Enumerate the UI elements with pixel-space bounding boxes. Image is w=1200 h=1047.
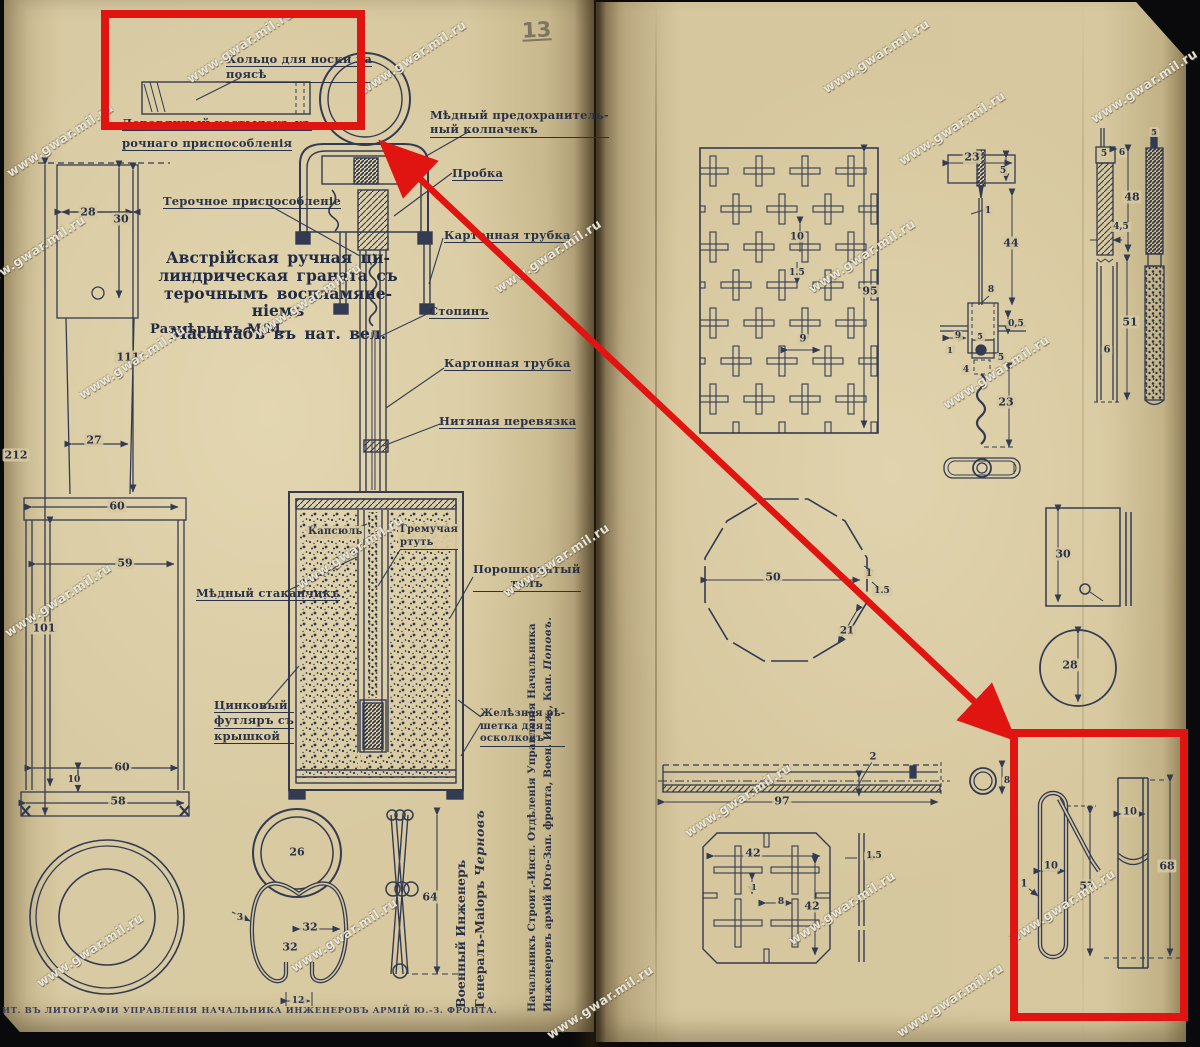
page-number: 13 bbox=[521, 17, 551, 42]
igniter-tubes-drawing bbox=[1090, 128, 1164, 405]
signature-chief-name: Поповъ. bbox=[542, 617, 554, 670]
dodecagon-drawing bbox=[705, 499, 880, 661]
scanned-document: Австрійская ручная ци- линдрическая гран… bbox=[0, 0, 1200, 1047]
title-line: Австрійская ручная ци- bbox=[150, 250, 406, 266]
striker-assembly-drawing bbox=[940, 150, 1026, 478]
signature-engineer-line2: Генералъ-Маіоръ bbox=[472, 876, 487, 1008]
belt-clip-detail-drawing bbox=[1028, 778, 1186, 968]
signature-chief-line1: Начальникъ Строит.-Инсп. Отдѣленія Управ… bbox=[526, 623, 538, 1012]
signature-chief-line2: Инженеровъ армій Юго-Зап. фронта, Воен. … bbox=[542, 670, 554, 1012]
signature-engineer-line1: Военный Инженеръ bbox=[453, 860, 468, 1008]
title-line: терочнымъ воспламяне- bbox=[150, 286, 406, 302]
signature-chief: Начальникъ Строит.-Инсп. Отдѣленія Управ… bbox=[524, 617, 557, 1012]
title-line: ніемъ bbox=[150, 303, 406, 319]
plate-42-drawing bbox=[703, 833, 878, 963]
square-and-disc-drawing bbox=[1040, 508, 1131, 706]
units-note: Размѣры въ М/М. bbox=[150, 322, 285, 337]
lithography-footer: ИТ. ВЪ ЛИТОГРАФІИ УПРАВЛЕНІЯ НАЧАЛЬНИКА … bbox=[2, 1006, 497, 1016]
rod-drawing bbox=[658, 762, 1002, 802]
grid-plate-drawing bbox=[700, 148, 878, 433]
signature-engineer-name: Черновъ bbox=[472, 810, 487, 876]
title-line: линдрическая граната съ bbox=[150, 268, 406, 284]
signature-engineer: Военный Инженеръ Генералъ-Маіоръ Черновъ bbox=[452, 810, 490, 1008]
grenade-section-drawing bbox=[142, 53, 481, 799]
line-art-layer bbox=[0, 0, 1200, 1047]
small-parts-drawing bbox=[232, 809, 458, 1006]
